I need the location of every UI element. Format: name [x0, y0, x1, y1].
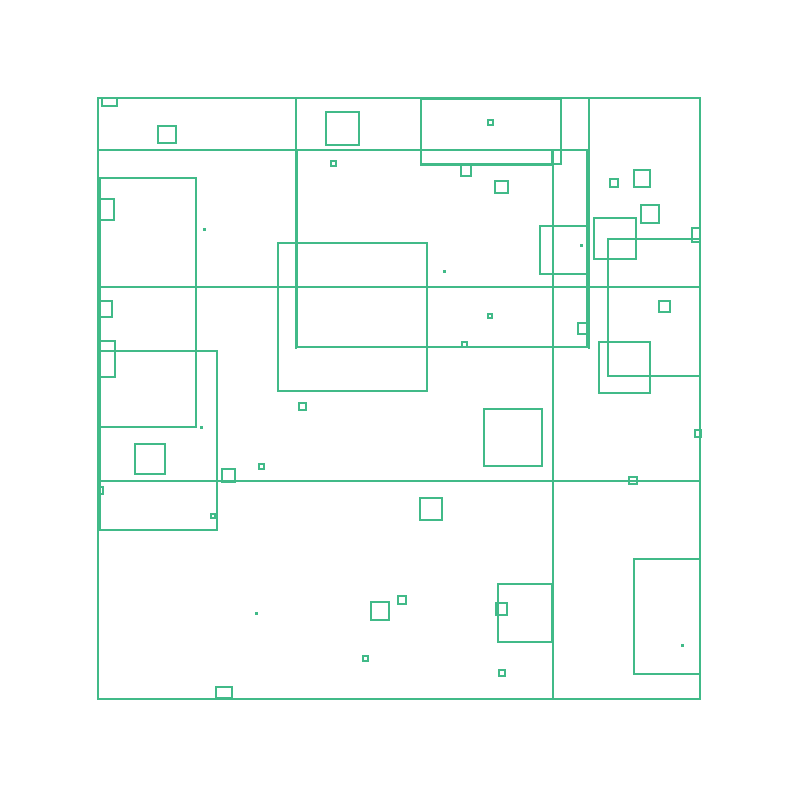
rect-outline — [298, 402, 307, 411]
dot — [255, 612, 258, 615]
rect-outline — [134, 443, 166, 475]
rect-outline — [362, 655, 369, 662]
rect-outline — [487, 313, 493, 319]
rect-outline — [210, 513, 216, 519]
rect-outline — [370, 601, 390, 621]
generative-art-canvas — [0, 0, 800, 800]
rect-outline — [694, 429, 702, 438]
rect-outline — [101, 97, 118, 107]
rect-outline — [539, 225, 588, 275]
rect-outline — [215, 686, 233, 699]
rect-outline — [461, 341, 468, 348]
line-segment — [588, 97, 590, 349]
rect-outline — [633, 558, 701, 675]
rect-outline — [483, 408, 543, 467]
rect-outline — [97, 486, 104, 495]
rect-outline — [628, 476, 638, 485]
dot — [580, 244, 583, 247]
rect-outline — [419, 497, 443, 521]
rect-outline — [487, 119, 494, 126]
rect-outline — [577, 322, 590, 335]
rect-outline — [495, 602, 508, 616]
rect-outline — [598, 341, 651, 394]
rect-outline — [157, 125, 177, 144]
rect-outline — [640, 204, 660, 224]
rect-outline — [397, 595, 407, 605]
rect-outline — [277, 242, 428, 392]
rect-outline — [99, 300, 113, 318]
rect-outline — [258, 463, 265, 470]
dot — [203, 228, 206, 231]
dot — [681, 644, 684, 647]
rect-outline — [99, 350, 218, 531]
dot — [200, 426, 203, 429]
dot — [443, 270, 446, 273]
rect-outline — [609, 178, 619, 188]
rect-outline — [691, 227, 701, 243]
rect-outline — [99, 198, 115, 221]
rect-outline — [658, 300, 671, 313]
rect-outline — [221, 468, 236, 483]
rect-outline — [633, 169, 651, 188]
page — [0, 0, 800, 800]
rect-outline — [498, 669, 506, 677]
rect-outline — [325, 111, 360, 146]
